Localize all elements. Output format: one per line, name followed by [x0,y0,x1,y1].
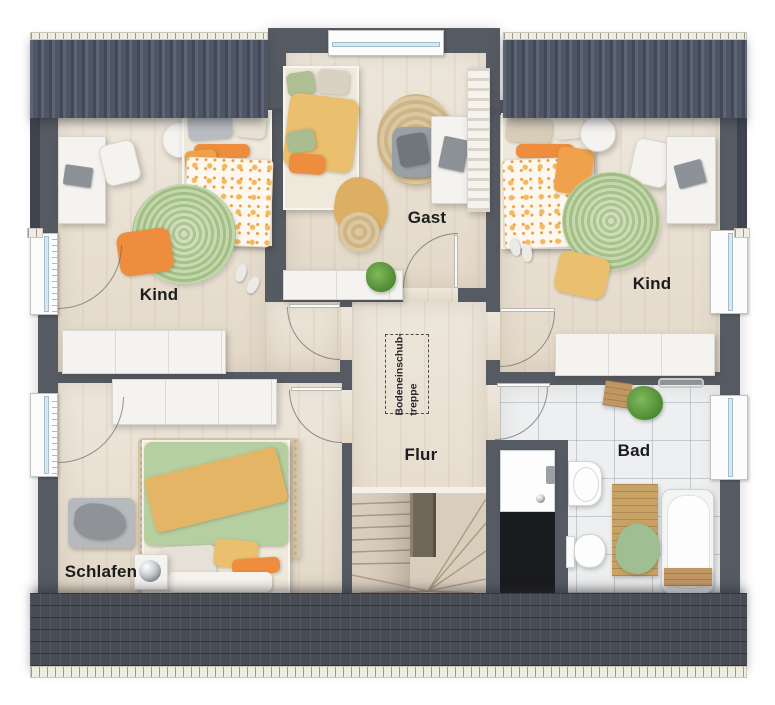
armchair-pillow [395,132,430,169]
plant [366,262,396,292]
window-glass [44,236,49,312]
roof-eave [737,116,747,230]
roof-eave-cap [27,228,43,238]
window [710,230,748,314]
bookshelf [467,68,490,212]
room-label-schlafen: Schlafen [65,562,137,582]
attic-hatch-label-line1: Bodeneinschub- [393,332,407,416]
room-label-flur: Flur [405,445,438,465]
roof-bottom [30,593,747,678]
window [30,393,58,477]
doorway-kind-right [486,312,500,360]
room-label-kind-left: Kind [140,285,179,305]
laptop-icon [63,164,94,188]
void-shaft [500,512,555,593]
staircase [352,487,486,593]
doorway-gast [403,288,458,302]
shower-fixture-icon [546,466,555,484]
floor-plan: Bodeneinschub- treppe Kind Gast Kind Sch… [0,0,775,705]
roof-top-left [30,32,268,118]
window-glass [728,233,733,311]
sideboard [555,333,715,376]
window-glass [44,396,49,474]
bathtub-caddy [664,568,712,586]
window [328,30,444,56]
side-table [580,116,616,152]
window-glass [332,42,440,47]
sink-basin [573,467,599,502]
radiator [52,238,57,312]
roof-surface [503,40,747,118]
roof-surface [30,593,747,666]
roof-eave [30,116,40,230]
room-label-kind-right: Kind [633,274,672,294]
toilet [574,534,606,568]
bed-sheet [168,572,272,592]
window [30,233,58,315]
bed-pillow [288,153,325,175]
roof-gutter [30,32,268,40]
room-label-bad: Bad [618,441,651,461]
sideboard [62,330,226,374]
roof-gutter [30,666,747,678]
roof-gutter [503,32,747,40]
towel-rail-icon [658,378,704,388]
roof-surface [30,40,268,118]
roof-top-right [503,32,747,118]
staircase-drawing [352,487,486,593]
pouf [115,226,175,277]
shower-drain [536,494,545,503]
table-lamp [139,560,161,582]
bed-pillow [505,115,553,145]
basket-pouf [338,212,380,252]
bed-pillow [316,69,350,96]
window-glass [728,398,733,477]
window [710,395,748,480]
attic-hatch-label-line2: treppe [407,332,421,416]
attic-hatch-label: Bodeneinschub- treppe [393,332,420,416]
shower-wall [555,440,568,593]
room-label-gast: Gast [408,208,447,228]
plant [627,386,663,420]
radiator [52,398,57,474]
roof-eave-cap [734,228,750,238]
doorway-kind-left [340,307,352,360]
wardrobe [112,379,277,425]
